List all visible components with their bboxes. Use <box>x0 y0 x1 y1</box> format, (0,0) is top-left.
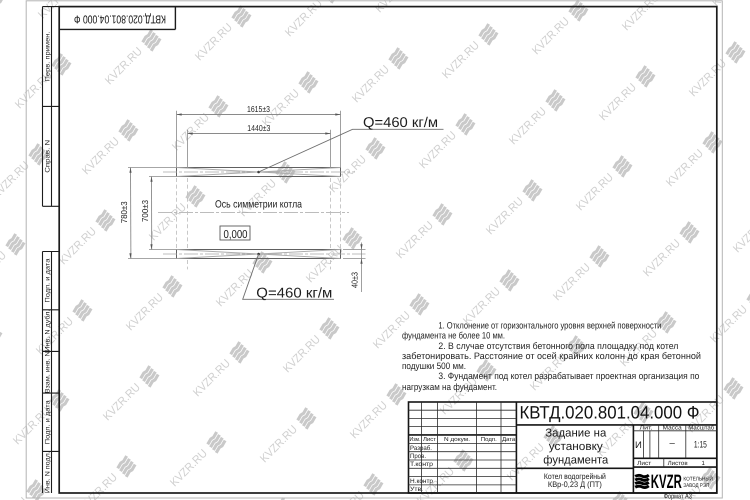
svg-text:KVZR.RU: KVZR.RU <box>708 303 750 345</box>
svg-text:KVZR.RU: KVZR.RU <box>193 21 235 63</box>
svg-text:1: 1 <box>702 460 706 467</box>
svg-text:1:15: 1:15 <box>694 440 707 451</box>
svg-text:KVZR.RU: KVZR.RU <box>101 381 143 423</box>
svg-text:1. Отклонение от горизонтально: 1. Отклонение от горизонтального уровня … <box>438 321 661 331</box>
svg-text:KVZR.RU: KVZR.RU <box>417 129 459 171</box>
svg-text:Задание на: Задание на <box>545 428 607 440</box>
svg-text:фундамента не более 10 мм.: фундамента не более 10 мм. <box>402 331 505 341</box>
svg-text:N докум.: N докум. <box>444 437 470 443</box>
svg-text:KVZR.RU: KVZR.RU <box>373 0 415 15</box>
svg-text:КОТЕЛЬНЫЙ: КОТЕЛЬНЫЙ <box>683 475 713 482</box>
svg-text:KVZR.RU: KVZR.RU <box>0 495 30 500</box>
svg-text:–: – <box>670 438 676 449</box>
svg-text:KVZR.RU: KVZR.RU <box>258 423 300 465</box>
svg-text:Т.контр: Т.контр <box>410 461 433 468</box>
svg-text:1440±3: 1440±3 <box>247 123 270 133</box>
svg-text:KVZR.RU: KVZR.RU <box>394 219 436 261</box>
svg-text:KVZR.RU: KVZR.RU <box>80 135 122 177</box>
svg-text:KVZR.RU: KVZR.RU <box>214 267 256 309</box>
svg-text:Формат А3: Формат А3 <box>664 492 692 500</box>
svg-text:KVZR.RU: KVZR.RU <box>103 45 145 87</box>
svg-text:Лист: Лист <box>423 437 436 443</box>
svg-text:забетонировать. Расстояние от: забетонировать. Расстояние от осей крайн… <box>402 351 701 361</box>
svg-text:KVZR.RU: KVZR.RU <box>597 81 639 123</box>
svg-text:нагрузкам на фундамент.: нагрузкам на фундамент. <box>402 382 497 392</box>
svg-text:1615±3: 1615±3 <box>247 104 270 114</box>
svg-text:КВр-0,23 Д (ПТ): КВр-0,23 Д (ПТ) <box>548 480 602 489</box>
svg-text:KVZR.RU: KVZR.RU <box>348 399 390 441</box>
svg-text:Подп.: Подп. <box>481 437 497 443</box>
svg-text:И: И <box>635 440 642 451</box>
svg-text:KVZR.RU: KVZR.RU <box>168 447 210 489</box>
svg-text:KVZR.RU: KVZR.RU <box>78 471 120 500</box>
svg-text:Изм.: Изм. <box>410 437 421 443</box>
svg-text:Ось симметрии котла: Ось симметрии котла <box>215 198 302 210</box>
svg-text:подушки 500 мм.: подушки 500 мм. <box>402 361 466 371</box>
svg-text:KVZR.RU: KVZR.RU <box>0 159 32 201</box>
svg-text:KVZR.RU: KVZR.RU <box>281 333 323 375</box>
svg-text:Инв. N подл.: Инв. N подл. <box>45 451 52 493</box>
svg-text:KVZR.RU: KVZR.RU <box>440 39 482 81</box>
svg-text:KVZR.RU: KVZR.RU <box>484 195 526 237</box>
svg-text:Инв. N дубл.: Инв. N дубл. <box>45 309 52 351</box>
svg-text:KVZR.RU: KVZR.RU <box>191 357 233 399</box>
svg-text:Разраб.: Разраб. <box>410 445 432 452</box>
svg-text:0,000: 0,000 <box>224 229 248 241</box>
svg-text:KVZR.RU: KVZR.RU <box>350 63 392 105</box>
svg-text:Справ. N: Справ. N <box>45 140 52 173</box>
svg-text:Перв. примен.: Перв. примен. <box>45 31 52 81</box>
svg-text:Подп. и дата: Подп. и дата <box>45 400 52 444</box>
svg-text:KVZR.RU: KVZR.RU <box>0 249 9 291</box>
svg-text:Н.контр: Н.контр <box>410 478 433 485</box>
svg-text:2. В случае отсутствия бетонно: 2. В случае отсутствия бетонного пола пл… <box>438 341 678 351</box>
svg-text:3. Фундамент под котел разраба: 3. Фундамент под котел разрабатывает про… <box>438 371 699 381</box>
svg-text:KVZR.RU: KVZR.RU <box>327 153 369 195</box>
svg-text:780±3: 780±3 <box>119 201 129 223</box>
svg-text:установку: установку <box>549 441 603 453</box>
svg-text:40±3: 40±3 <box>350 272 360 288</box>
svg-text:КВТД.020.801.04.000 Ф: КВТД.020.801.04.000 Ф <box>520 403 700 423</box>
svg-text:Взам. инв. N: Взам. инв. N <box>45 351 52 393</box>
svg-text:KVZR.RU: KVZR.RU <box>530 15 572 57</box>
svg-text:Подп. и дата: Подп. и дата <box>45 258 52 302</box>
svg-text:700±3: 700±3 <box>140 200 150 222</box>
svg-text:KVZR.RU: KVZR.RU <box>664 147 706 189</box>
svg-text:Лист: Лист <box>637 460 651 467</box>
svg-text:Лит.: Лит. <box>640 425 653 432</box>
svg-text:KVZR.RU: KVZR.RU <box>57 225 99 267</box>
svg-text:KVZR.RU: KVZR.RU <box>124 291 166 333</box>
svg-text:фундамента: фундамента <box>543 455 609 467</box>
svg-text:KVZR: KVZR <box>651 471 682 493</box>
svg-text:Пров.: Пров. <box>410 453 426 460</box>
svg-text:Утв.: Утв. <box>410 486 423 493</box>
svg-text:KVZR.RU: KVZR.RU <box>147 201 189 243</box>
svg-text:ЗАВОД РЭП: ЗАВОД РЭП <box>683 483 709 489</box>
svg-text:Дата: Дата <box>502 437 516 443</box>
svg-text:KVZR.RU: KVZR.RU <box>574 171 616 213</box>
svg-text:KVZR.RU: KVZR.RU <box>641 237 683 279</box>
svg-text:KVZR.RU: KVZR.RU <box>620 0 662 33</box>
svg-text:Q=460 кг/м: Q=460 кг/м <box>363 115 438 131</box>
svg-text:КВТД.020.801.04.000 Ф: КВТД.020.801.04.000 Ф <box>74 12 166 24</box>
svg-text:Q=460 кг/м: Q=460 кг/м <box>256 286 332 302</box>
svg-text:Масштаб: Масштаб <box>688 425 715 432</box>
svg-text:Листов: Листов <box>668 460 688 467</box>
svg-text:KVZR.RU: KVZR.RU <box>507 105 549 147</box>
svg-text:KVZR.RU: KVZR.RU <box>731 213 750 255</box>
svg-text:Масса: Масса <box>663 425 683 432</box>
svg-text:KVZR.RU: KVZR.RU <box>551 261 593 303</box>
